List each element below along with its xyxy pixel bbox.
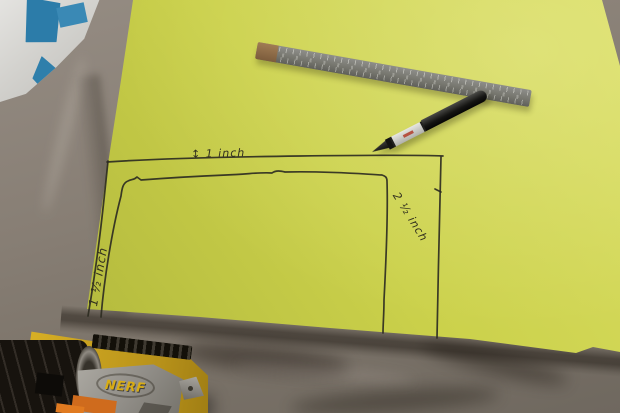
nerf-blaster: NERF — [0, 330, 212, 413]
dimension-label-top: ↕ 1 inch — [191, 146, 246, 160]
plastic-bag-blue-print — [56, 2, 88, 27]
ruler-end-cap — [255, 42, 279, 62]
photo-scene: ↕ 1 inch 1 ½ inch 2 ½ inch NERF — [0, 0, 620, 413]
nerf-bracket-screw — [188, 386, 193, 391]
marker-label-red-mark — [403, 130, 414, 138]
nerf-panel-notch — [138, 402, 172, 413]
nerf-body-cutout — [35, 372, 64, 396]
plastic-bag-blue-print — [27, 56, 70, 98]
fabric-wrinkle-shadow — [289, 383, 500, 413]
nerf-logo-text: NERF — [104, 378, 146, 396]
nerf-logo-badge: NERF — [95, 371, 156, 400]
